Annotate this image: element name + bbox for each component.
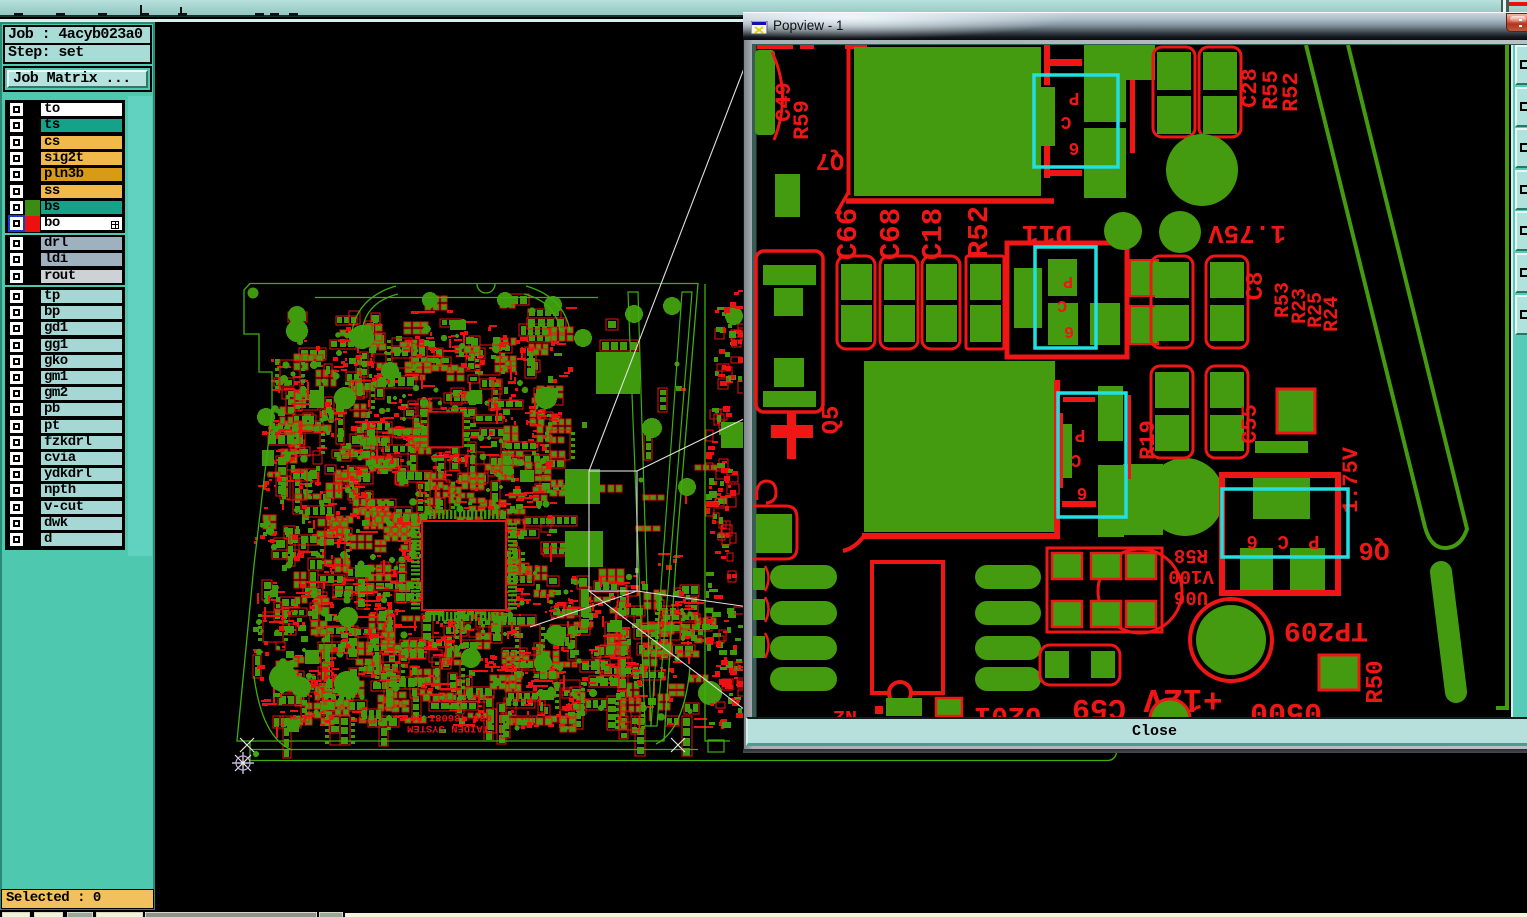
svg-text:C68: C68: [875, 208, 908, 260]
svg-text:C55: C55: [1238, 404, 1263, 444]
svg-text:R52: R52: [1279, 72, 1304, 112]
svg-text:6: 6: [1077, 482, 1088, 502]
svg-text:Q5: Q5: [819, 406, 846, 435]
svg-text:R50: R50: [1363, 660, 1390, 703]
svg-text:0500: 0500: [1250, 694, 1322, 717]
svg-text:R24: R24: [1321, 296, 1344, 332]
svg-text:N2: N2: [833, 704, 857, 717]
svg-text:C59: C59: [1072, 690, 1126, 717]
svg-text:C66: C66: [832, 208, 865, 260]
svg-text:R58: R58: [1174, 544, 1208, 566]
svg-text:1.75V: 1.75V: [1208, 218, 1286, 248]
svg-text:C8: C8: [1243, 272, 1270, 301]
svg-text:V100: V100: [1168, 565, 1214, 587]
svg-text:U201: U201: [974, 699, 1041, 717]
svg-text:C18: C18: [917, 208, 950, 260]
svg-text:C: C: [1070, 449, 1081, 469]
svg-text:R52: R52: [963, 206, 996, 258]
svg-text:030-48608I-00: 030-48608I-00: [410, 711, 492, 723]
svg-text:TP209: TP209: [1284, 614, 1368, 645]
svg-text:Q7: Q7: [816, 146, 845, 173]
svg-text:U06: U06: [1174, 586, 1208, 608]
svg-text:6: 6: [1064, 321, 1074, 340]
svg-text:R59: R59: [790, 100, 815, 140]
svg-text:P C 6: P C 6: [1242, 530, 1319, 552]
svg-text:C: C: [1057, 295, 1067, 314]
svg-text:Q6: Q6: [1358, 535, 1389, 565]
svg-text:C: C: [1060, 111, 1071, 131]
svg-text:1.75V: 1.75V: [1339, 446, 1364, 513]
svg-text:6: 6: [1069, 137, 1080, 157]
svg-text:P: P: [1074, 424, 1085, 444]
svg-text:P: P: [1068, 87, 1079, 107]
svg-text:P: P: [1063, 271, 1073, 290]
